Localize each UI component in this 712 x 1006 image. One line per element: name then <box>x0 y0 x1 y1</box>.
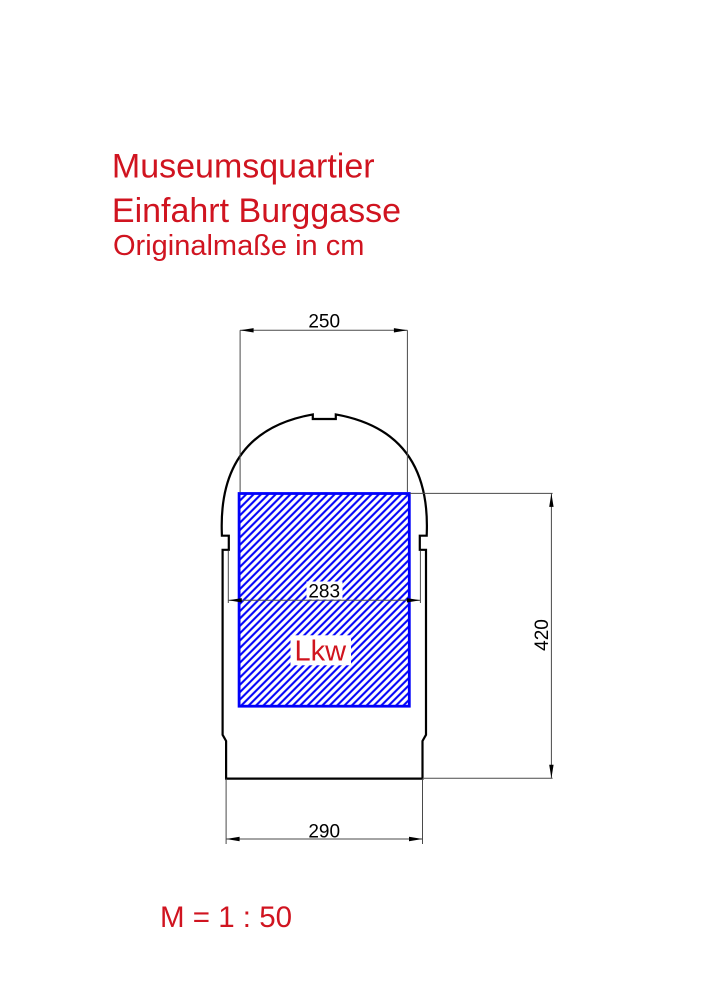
svg-text:Lkw: Lkw <box>295 636 348 668</box>
svg-text:420: 420 <box>532 619 553 651</box>
svg-text:290: 290 <box>308 821 340 842</box>
svg-text:250: 250 <box>308 311 340 332</box>
svg-text:283: 283 <box>308 581 340 602</box>
svg-text:Originalmaße in cm: Originalmaße in cm <box>113 230 364 262</box>
svg-text:Museumsquartier: Museumsquartier <box>112 148 375 186</box>
svg-text:M = 1 : 50: M = 1 : 50 <box>160 901 292 934</box>
svg-text:Einfahrt Burggasse: Einfahrt Burggasse <box>112 192 401 230</box>
